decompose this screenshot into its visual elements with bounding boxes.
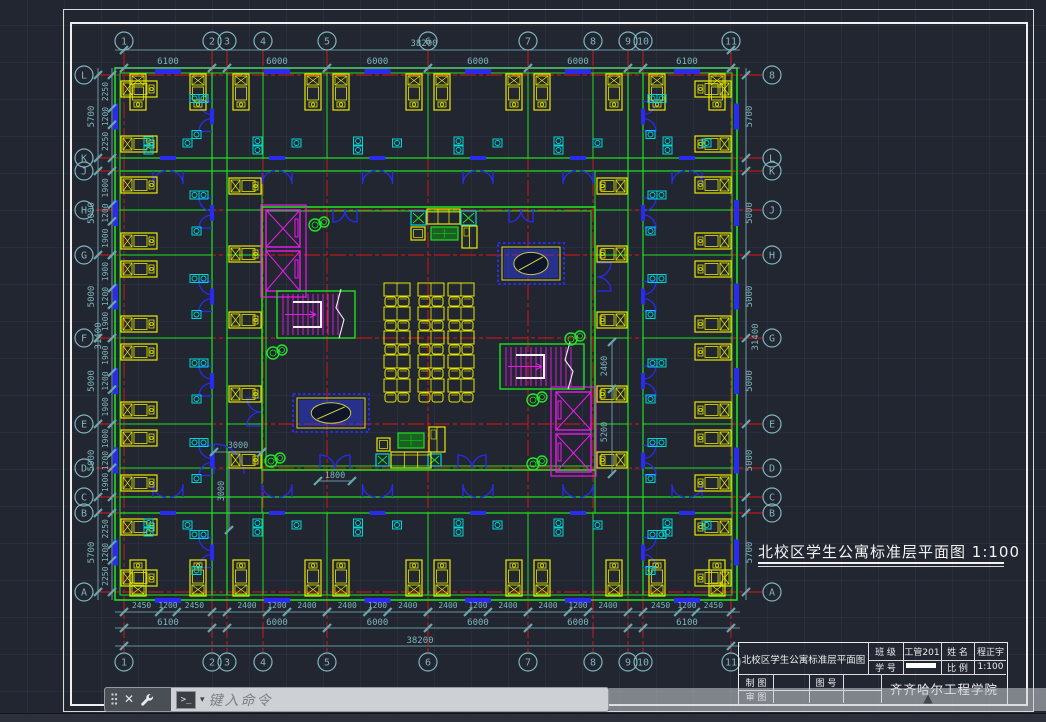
svg-text:C: C <box>769 493 775 504</box>
name-label: 姓 名 <box>941 643 974 660</box>
svg-text:38200: 38200 <box>406 636 433 646</box>
svg-text:1200: 1200 <box>368 601 387 610</box>
drawing-title: 北校区学生公寓标准层平面图 1:100 <box>758 541 1018 562</box>
svg-text:F: F <box>81 334 87 345</box>
svg-text:6000: 6000 <box>467 618 489 628</box>
svg-text:6100: 6100 <box>157 618 179 628</box>
svg-text:6000: 6000 <box>266 57 288 67</box>
svg-text:2400: 2400 <box>498 601 517 610</box>
scale-label: 比 例 <box>941 660 974 674</box>
svg-text:1200: 1200 <box>677 601 696 610</box>
class-label: 班 级 <box>868 643 903 660</box>
svg-text:5700: 5700 <box>745 542 755 564</box>
name-value: 程正宇 <box>974 643 1007 660</box>
expand-arrow-icon[interactable]: ▲ <box>920 690 936 706</box>
svg-text:7: 7 <box>525 658 531 669</box>
svg-text:A: A <box>81 588 87 599</box>
svg-text:1900: 1900 <box>101 429 110 448</box>
svg-text:2400: 2400 <box>338 601 357 610</box>
svg-text:5000: 5000 <box>87 286 97 308</box>
close-icon[interactable]: ✕ <box>124 688 134 711</box>
command-line-bar[interactable]: ✕ >_ ▾ 键入命令 <box>104 687 609 712</box>
svg-text:2400: 2400 <box>237 601 256 610</box>
wrench-icon[interactable] <box>140 693 154 707</box>
svg-text:9: 9 <box>625 37 631 48</box>
svg-text:1200: 1200 <box>468 601 487 610</box>
svg-text:1800: 1800 <box>325 471 345 481</box>
svg-text:2400: 2400 <box>297 601 316 610</box>
svg-text:B: B <box>81 509 87 520</box>
svg-text:2250: 2250 <box>101 132 110 151</box>
svg-text:8: 8 <box>590 658 596 669</box>
student-id-redacted <box>906 663 936 668</box>
svg-text:1900: 1900 <box>101 397 110 416</box>
svg-text:1200: 1200 <box>101 107 110 126</box>
svg-text:5: 5 <box>324 37 330 48</box>
svg-text:31400: 31400 <box>94 322 104 349</box>
svg-text:2250: 2250 <box>101 82 110 101</box>
svg-text:5000: 5000 <box>745 202 755 224</box>
svg-text:5700: 5700 <box>87 106 97 128</box>
svg-text:1900: 1900 <box>101 262 110 281</box>
class-value: 工管201 <box>903 643 941 660</box>
svg-text:6000: 6000 <box>467 57 489 67</box>
svg-text:5000: 5000 <box>745 370 755 392</box>
svg-text:11: 11 <box>725 37 737 48</box>
svg-text:1200: 1200 <box>267 601 286 610</box>
svg-text:10: 10 <box>637 37 649 48</box>
svg-text:2250: 2250 <box>101 566 110 585</box>
svg-text:2: 2 <box>209 658 215 669</box>
svg-text:2400: 2400 <box>438 601 457 610</box>
svg-text:6100: 6100 <box>676 57 698 67</box>
svg-text:11: 11 <box>725 658 737 669</box>
autocad-viewport[interactable]: 6100600060006000600061003820024501200245… <box>0 0 1046 722</box>
svg-text:2400: 2400 <box>598 601 617 610</box>
svg-text:2460: 2460 <box>600 356 610 376</box>
svg-text:G: G <box>81 251 87 262</box>
walls <box>115 68 737 600</box>
svg-text:31400: 31400 <box>751 323 761 350</box>
svg-text:1: 1 <box>121 37 127 48</box>
svg-text:2400: 2400 <box>398 601 417 610</box>
svg-text:K: K <box>769 167 775 178</box>
svg-text:6: 6 <box>425 658 431 669</box>
recent-commands-caret-icon[interactable]: ▾ <box>200 695 205 705</box>
command-input[interactable]: 键入命令 <box>209 690 273 710</box>
svg-text:3: 3 <box>224 37 230 48</box>
svg-text:1900: 1900 <box>101 473 110 492</box>
svg-text:6000: 6000 <box>367 618 389 628</box>
svg-text:1200: 1200 <box>101 287 110 306</box>
title-underline <box>758 562 1004 564</box>
svg-text:6000: 6000 <box>266 618 288 628</box>
axis-centerlines <box>96 50 762 652</box>
windows <box>113 69 739 603</box>
svg-text:5700: 5700 <box>745 106 755 128</box>
svg-text:L: L <box>81 71 87 82</box>
svg-text:J: J <box>81 167 87 178</box>
svg-text:2450: 2450 <box>704 601 723 610</box>
svg-text:1200: 1200 <box>101 371 110 390</box>
svg-text:1200: 1200 <box>101 203 110 222</box>
svg-text:1200: 1200 <box>101 543 110 562</box>
svg-text:1200: 1200 <box>568 601 587 610</box>
svg-text:1200: 1200 <box>101 451 110 470</box>
svg-text:5000: 5000 <box>745 286 755 308</box>
svg-text:10: 10 <box>637 658 649 669</box>
svg-text:B: B <box>769 509 775 520</box>
svg-text:G: G <box>769 334 775 345</box>
svg-text:5: 5 <box>324 658 330 669</box>
svg-text:1900: 1900 <box>101 178 110 197</box>
svg-text:9: 9 <box>625 658 631 669</box>
svg-text:3000: 3000 <box>228 441 248 451</box>
svg-text:5700: 5700 <box>87 542 97 564</box>
titleblock-project-name: 北校区学生公寓标准层平面图 <box>741 643 866 674</box>
svg-text:E: E <box>81 420 87 431</box>
title-underline-2 <box>758 566 1004 567</box>
svg-text:D: D <box>81 464 87 475</box>
svg-text:1200: 1200 <box>158 601 177 610</box>
svg-text:4: 4 <box>260 37 266 48</box>
svg-text:2450: 2450 <box>185 601 204 610</box>
svg-text:3000: 3000 <box>217 481 227 501</box>
svg-text:2250: 2250 <box>101 519 110 538</box>
student-id-label: 学 号 <box>868 660 903 674</box>
svg-text:A: A <box>769 588 775 599</box>
svg-text:5000: 5000 <box>745 450 755 472</box>
svg-text:7: 7 <box>525 37 531 48</box>
svg-text:D: D <box>769 464 775 475</box>
svg-text:6000: 6000 <box>567 57 589 67</box>
svg-text:6100: 6100 <box>157 57 179 67</box>
svg-text:1: 1 <box>121 658 127 669</box>
svg-text:J: J <box>769 206 775 217</box>
svg-text:4: 4 <box>260 658 266 669</box>
drag-grip-icon[interactable] <box>111 693 118 706</box>
svg-text:6100: 6100 <box>676 618 698 628</box>
taskbar-strip <box>0 713 1046 722</box>
svg-text:1900: 1900 <box>101 228 110 247</box>
svg-text:6000: 6000 <box>367 57 389 67</box>
status-strip <box>609 688 1046 711</box>
svg-text:C: C <box>81 493 87 504</box>
svg-text:5000: 5000 <box>87 370 97 392</box>
svg-text:E: E <box>769 420 775 431</box>
svg-text:2: 2 <box>209 37 215 48</box>
svg-text:2450: 2450 <box>132 601 151 610</box>
svg-text:H: H <box>81 206 87 217</box>
svg-text:6000: 6000 <box>567 618 589 628</box>
svg-text:6: 6 <box>425 37 431 48</box>
svg-text:2450: 2450 <box>651 601 670 610</box>
scale-value: 1:100 <box>974 660 1007 674</box>
svg-text:H: H <box>769 251 775 262</box>
svg-text:5200: 5200 <box>600 422 610 442</box>
svg-text:3: 3 <box>224 658 230 669</box>
floor-plan-drawing[interactable]: 6100600060006000600061003820024501200245… <box>0 0 1046 722</box>
svg-text:8: 8 <box>590 37 596 48</box>
svg-text:2400: 2400 <box>538 601 557 610</box>
svg-text:8: 8 <box>769 71 775 82</box>
command-prompt-icon[interactable]: >_ <box>176 691 196 709</box>
